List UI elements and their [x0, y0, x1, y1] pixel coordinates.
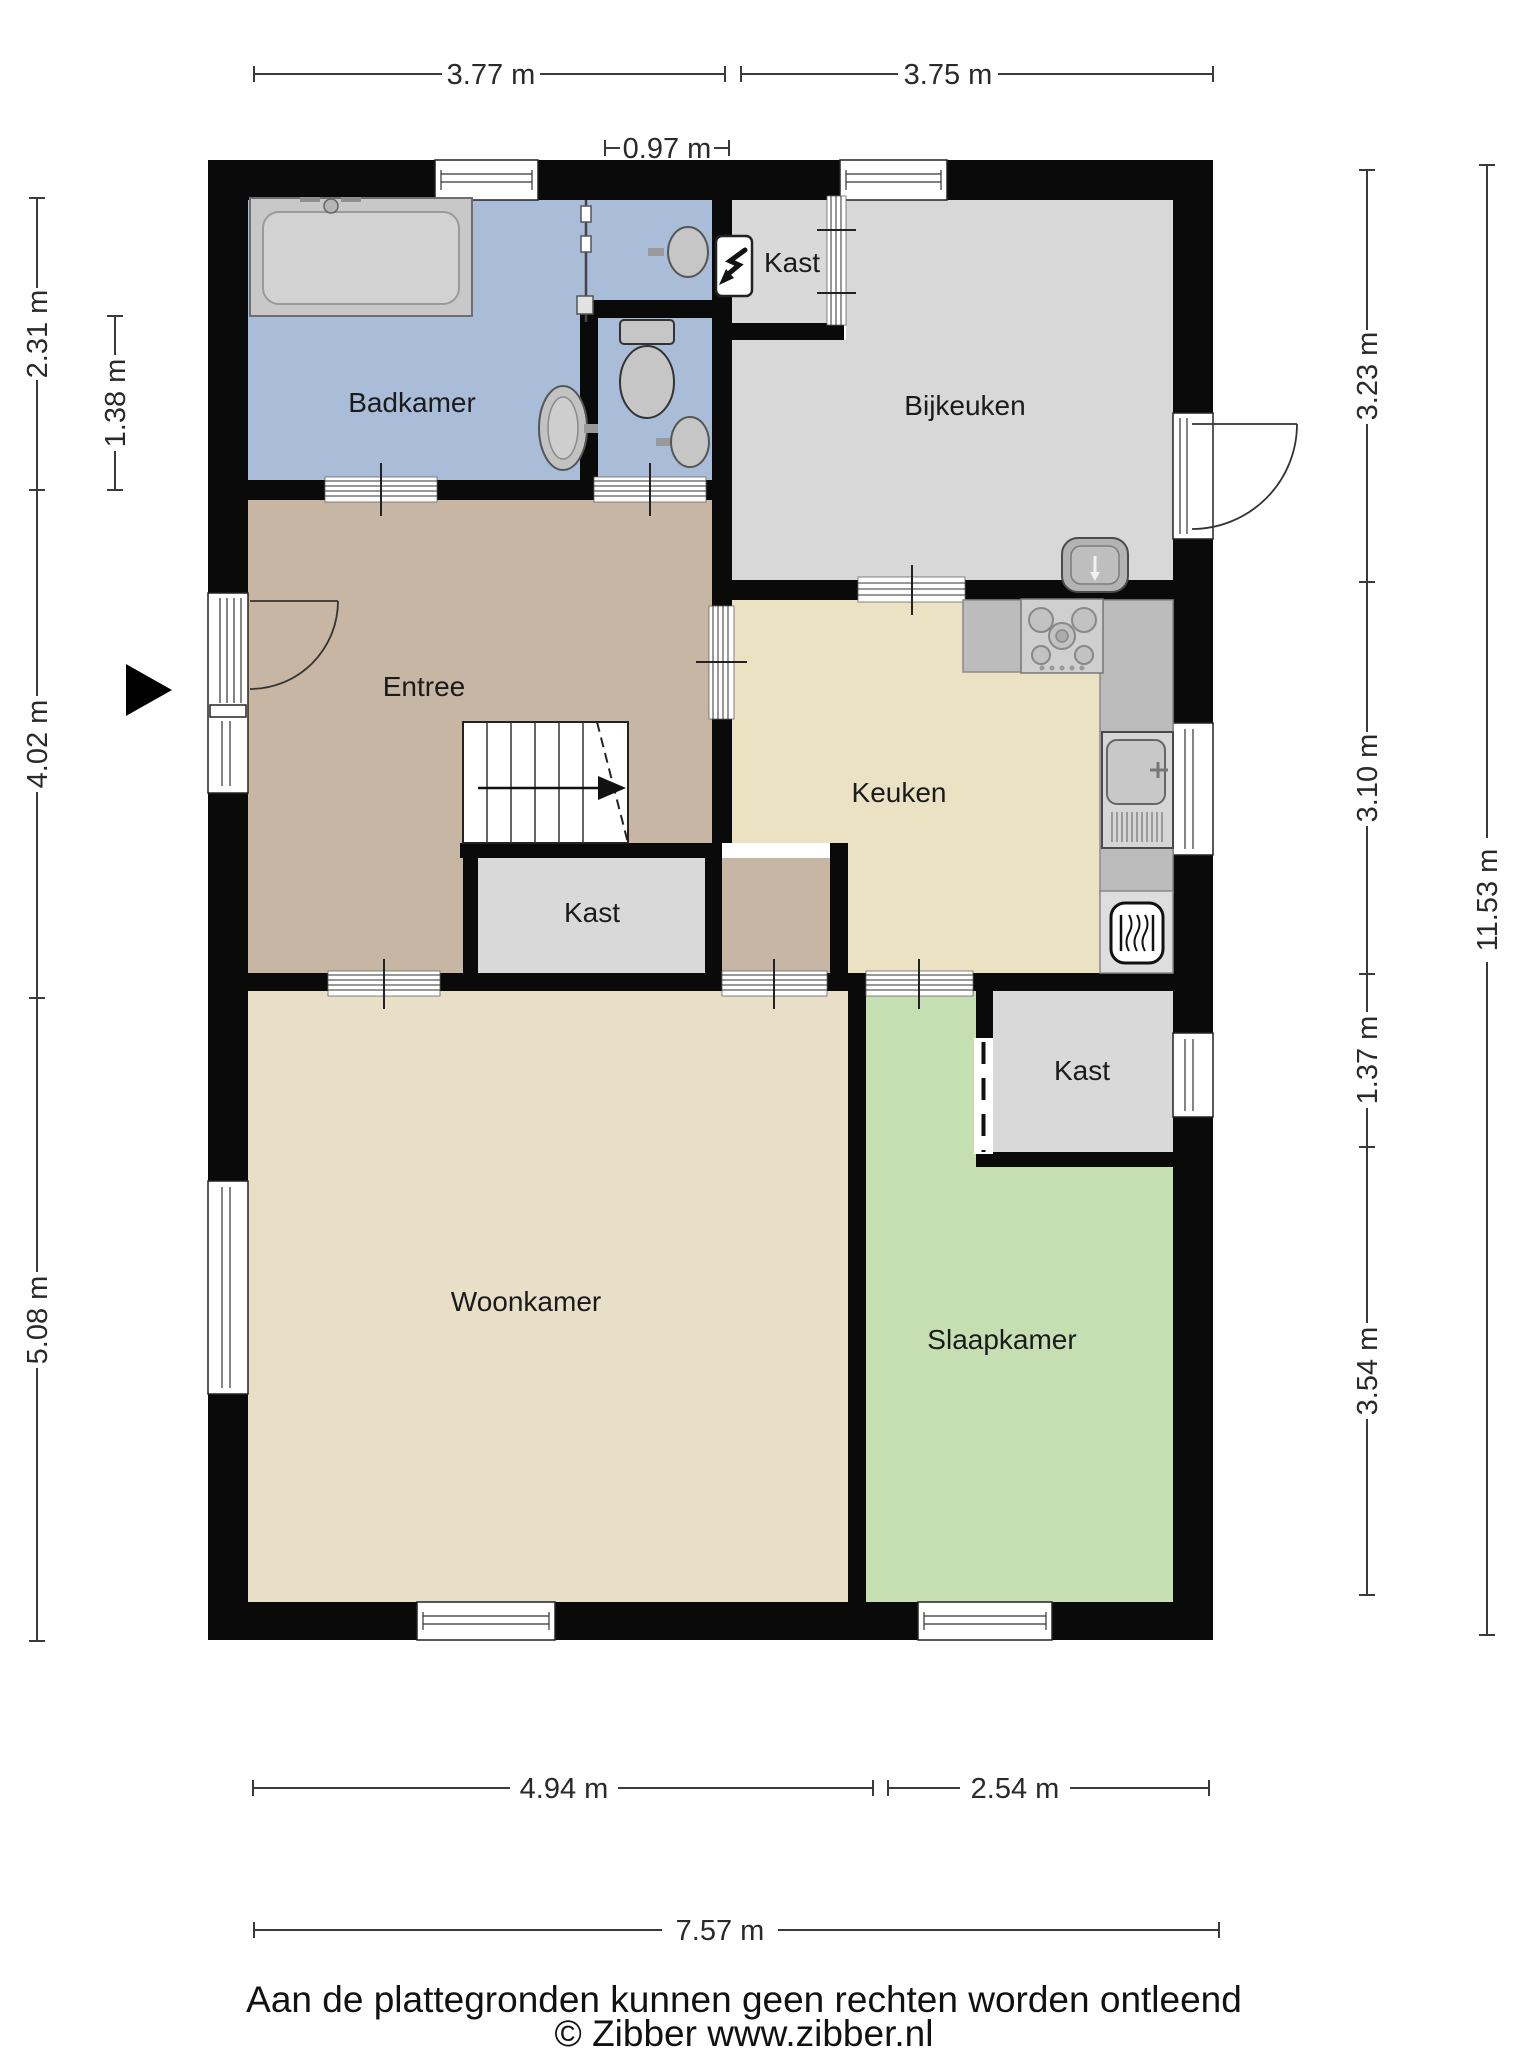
label-bijkeuken: Bijkeuken: [904, 390, 1025, 421]
heater-icon: [1100, 891, 1173, 973]
label-badkamer: Badkamer: [348, 387, 476, 418]
dim-right-2: 3.10 m: [1352, 734, 1384, 823]
footer: Aan de plattegronden kunnen geen rechten…: [246, 1979, 1242, 2048]
dim-top-window: 0.97 m: [623, 133, 712, 165]
dim-left-inner: 1.38 m: [100, 359, 132, 448]
window-kast-right-icon: [1173, 1033, 1213, 1117]
label-keuken: Keuken: [852, 777, 947, 808]
entry-arrow-icon: [126, 664, 172, 716]
window-badkamer-icon: [435, 160, 538, 200]
label-kast-right: Kast: [1054, 1055, 1110, 1086]
dim-left-1: 2.31 m: [22, 290, 54, 379]
stairs: [463, 722, 628, 843]
dim-right-4: 3.54 m: [1352, 1327, 1384, 1416]
window-slaapkamer-icon: [918, 1602, 1052, 1640]
dim-top-2: 3.75 m: [904, 59, 993, 91]
label-slaapkamer: Slaapkamer: [927, 1324, 1076, 1355]
dim-left-2: 4.02 m: [22, 700, 54, 789]
dim-right-3: 1.37 m: [1352, 1016, 1384, 1105]
toilet-icon: [620, 320, 674, 418]
floorplan: Badkamer Kast Bijkeuken Entree Keuken Ka…: [0, 0, 1536, 2048]
dim-right-total: 11.53 m: [1472, 849, 1504, 952]
sliding-door-kast-right-icon: [974, 1038, 993, 1154]
footer-credit: © Zibber www.zibber.nl: [555, 2013, 934, 2048]
dim-right-1: 3.23 m: [1352, 332, 1384, 421]
window-keuken-icon: [1173, 723, 1213, 855]
dim-bottom-total: 7.57 m: [676, 1915, 765, 1947]
dim-bottom-1: 4.94 m: [520, 1773, 609, 1805]
stove-icon: [1021, 599, 1103, 673]
kitchen-sink-icon: [1102, 732, 1173, 848]
dim-top-1: 3.77 m: [447, 59, 536, 91]
dim-left-3: 5.08 m: [22, 1276, 54, 1365]
label-entree: Entree: [383, 671, 466, 702]
label-kast-middle: Kast: [564, 897, 620, 928]
label-kast-top: Kast: [764, 247, 820, 278]
window-woonkamer-bottom-icon: [417, 1602, 555, 1640]
bijkeuken-door-icon: [1173, 413, 1297, 539]
bathtub-icon: [250, 197, 472, 316]
label-woonkamer: Woonkamer: [451, 1286, 601, 1317]
meter-cupboard-icon: [716, 236, 752, 296]
bijkeuken-sink-icon: [1062, 538, 1128, 592]
dim-bottom-2: 2.54 m: [971, 1773, 1060, 1805]
window-bijkeuken-icon: [840, 160, 947, 200]
window-woonkamer-left-icon: [208, 1181, 248, 1394]
